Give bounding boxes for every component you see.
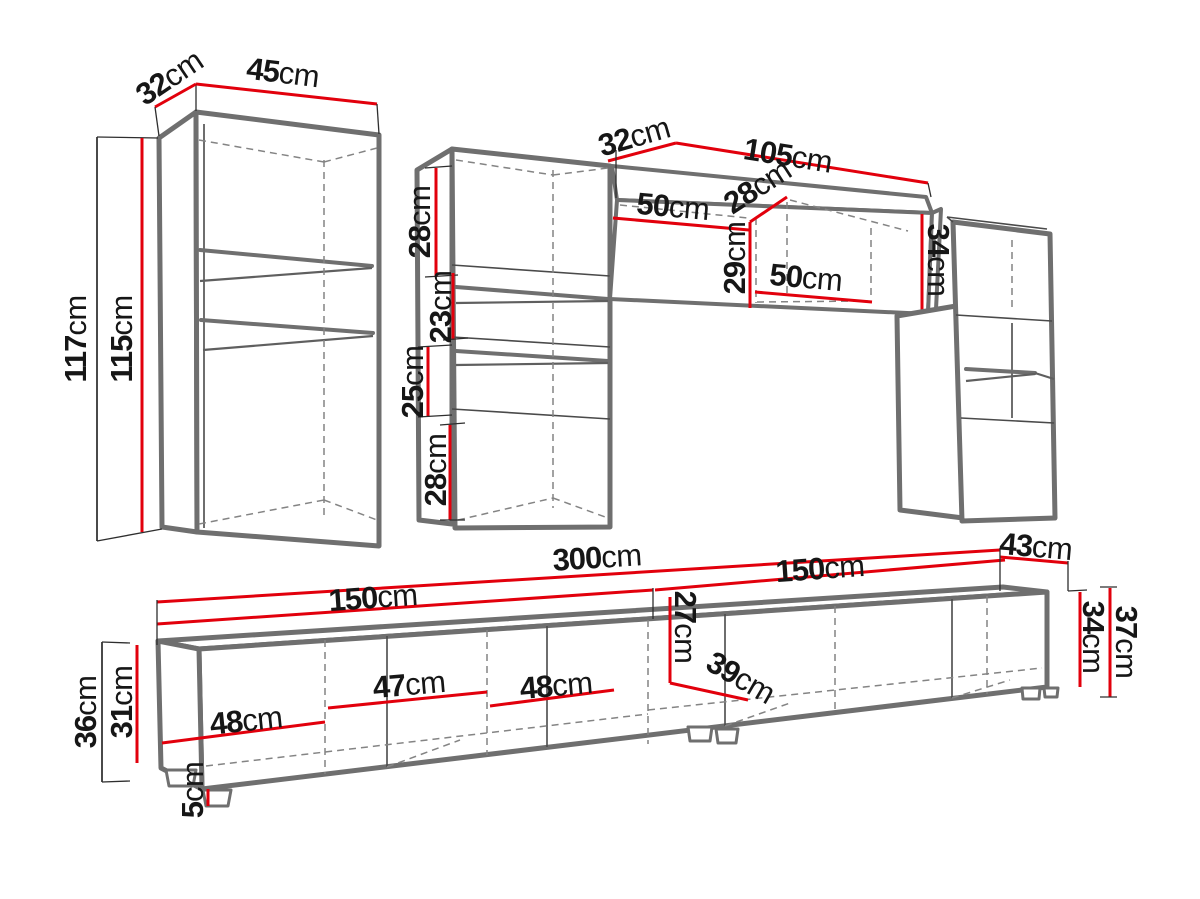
dim-hanging-unit-opening-width: 50cm xyxy=(768,256,844,297)
dim-tv-stand-total-height-right: 37cm xyxy=(1110,606,1145,679)
left-cabinet-front xyxy=(196,112,379,546)
left-cabinet-side-panel xyxy=(159,112,197,532)
dim-middle-cabinet-section1: 28cm xyxy=(402,186,437,259)
tv-stand-foot xyxy=(1022,688,1040,699)
tv-stand-foot xyxy=(1044,688,1058,697)
left-cabinet xyxy=(159,112,379,546)
tv-stand-foot xyxy=(716,729,738,743)
dim-hanging-unit-opening-height: 29cm xyxy=(717,222,752,295)
dim-tv-stand-carcass-height-left: 31cm xyxy=(104,666,139,739)
dimension-diagram-page: 32cm 45cm 117cm 115cm 28cm 23cm 2 xyxy=(0,0,1200,899)
dim-tv-stand-door2: 47cm xyxy=(371,663,447,704)
right-cabinet-side-panel xyxy=(897,306,963,518)
dim-tv-stand-left-half: 150cm xyxy=(327,576,418,617)
dim-hanging-unit-left-door-width: 50cm xyxy=(635,185,711,226)
dim-left-cabinet-depth: 32cm xyxy=(129,42,209,112)
furniture-dimension-diagram: 32cm 45cm 117cm 115cm 28cm 23cm 2 xyxy=(0,0,1200,899)
dim-tv-stand-right-half: 150cm xyxy=(774,547,865,588)
tv-stand-foot xyxy=(688,727,712,741)
tv-stand xyxy=(158,587,1058,806)
dim-tv-stand-depth: 43cm xyxy=(998,525,1074,566)
dim-tv-stand-inner-height: 27cm xyxy=(669,591,704,664)
dim-tv-stand-door3: 48cm xyxy=(518,664,594,705)
dim-left-cabinet-inner-height: 115cm xyxy=(104,295,139,382)
dim-left-cabinet-height: 117cm xyxy=(58,295,93,382)
dim-tv-stand-total-height-left: 36cm xyxy=(68,676,103,749)
dim-tv-stand-carcass-height-right: 34cm xyxy=(1077,601,1112,674)
dim-middle-cabinet-section4: 28cm xyxy=(418,434,453,507)
dim-tv-stand-foot-height: 5cm xyxy=(175,762,210,819)
tv-stand-front xyxy=(199,592,1047,789)
dim-middle-cabinet-section2: 23cm xyxy=(423,271,458,344)
dim-left-cabinet-width: 45cm xyxy=(245,50,322,94)
dim-tv-stand-total-width: 300cm xyxy=(551,537,642,577)
dim-middle-cabinet-section3: 25cm xyxy=(395,346,430,419)
